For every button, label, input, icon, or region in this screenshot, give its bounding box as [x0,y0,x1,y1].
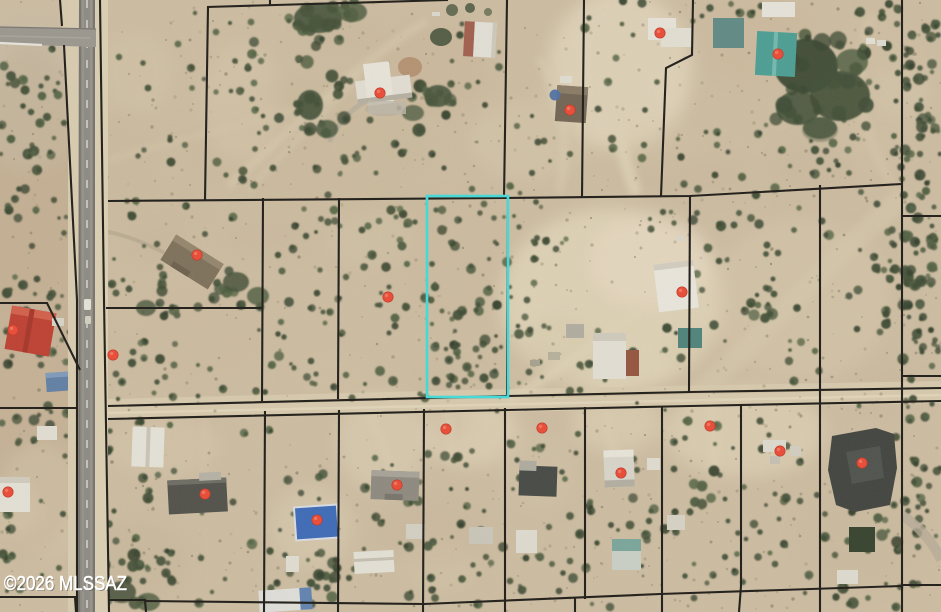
svg-text:©2026 MLSSAZ: ©2026 MLSSAZ [4,573,127,595]
